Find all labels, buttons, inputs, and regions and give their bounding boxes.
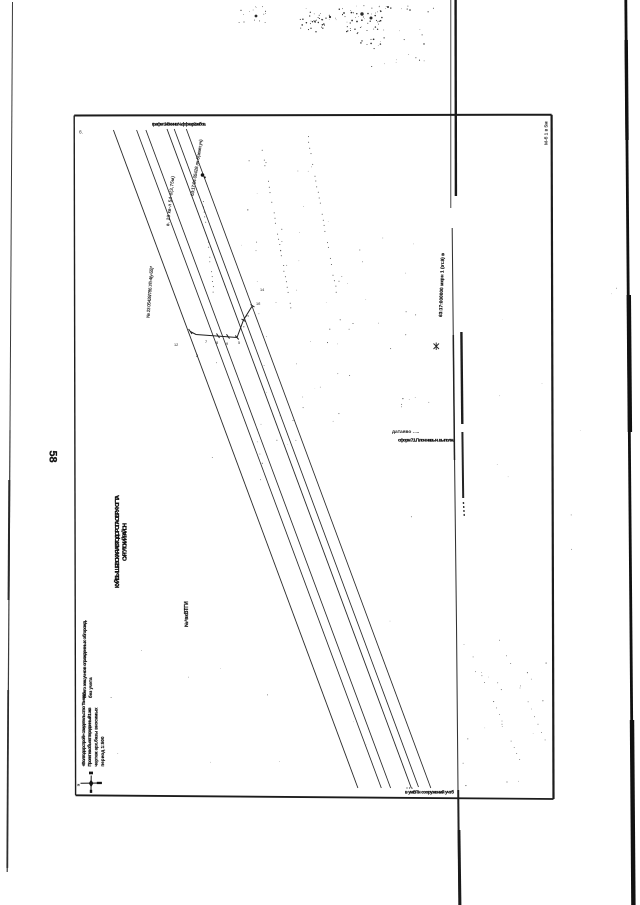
svg-text:№ 23 05428/786 УЛ-4(у-55)*: № 23 05428/786 УЛ-4(у-55)*	[146, 266, 155, 318]
svg-text:5: 5	[238, 341, 240, 345]
svg-text:63:17:000000 мкрн 1 (эт.9) в: 63:17:000000 мкрн 1 (эт.9) в	[438, 253, 445, 317]
svg-text:н: н	[247, 314, 249, 318]
svg-text:М-б 1 в 5м: М-б 1 в 5м	[544, 121, 550, 145]
svg-text:КУЙБЫШЕВСКАЯ АВТОДОРОГА ОБРУ-Ю: КУЙБЫШЕВСКАЯ АВТОДОРОГА ОБРУ-ЮГ ТА	[113, 494, 121, 588]
svg-text:14: 14	[260, 288, 264, 292]
svg-text:«Волгодорстрой» свидетельство: «Волгодорстрой» свидетельство Та-юсл.	[81, 692, 86, 767]
svg-text:Проект на объект переданный 1: Проект на объект переданный 1 экз	[87, 707, 92, 767]
svg-text:8: 8	[216, 341, 218, 345]
svg-text:сформ 7.1.П.пон навыч. выполн.: сформ 7.1.П.пон навыч. выполн.	[398, 437, 454, 443]
svg-text:7: 7	[205, 340, 207, 344]
svg-text:период 1:500: период 1:500	[100, 736, 105, 767]
svg-text:без учета: без учета	[88, 677, 93, 698]
svg-text:58: 58	[47, 450, 59, 462]
svg-text:в. 23 кв-л 54 о(3,75м): в. 23 кв-л 54 о(3,75м)	[165, 175, 175, 226]
svg-text:63:17:04 05428 лч-6(земн.уч): 63:17:04 05428 лч-6(земн.уч)	[190, 139, 204, 197]
svg-text:чертеж арх.базы вносимых: чертеж арх.базы вносимых	[94, 707, 99, 767]
svg-text:1б: 1б	[256, 302, 261, 306]
svg-text:№²вкВТГИ: №²вкВТГИ	[184, 601, 190, 627]
svg-text:в умВТи сооружений учтб: в умВТи сооружений учтб	[405, 790, 454, 795]
svg-text:гр.афал 148 к инв.№ффна р2.ваб: гр.афал 148 к инв.№ффна р2.вабов.	[152, 122, 206, 127]
svg-text:СУРГУТСКИЙ РАЙОН: СУРГУТСКИЙ РАЙОН	[121, 523, 129, 561]
svg-text:датаяво . ...: датаяво . ...	[392, 430, 419, 435]
svg-text:12: 12	[174, 343, 178, 347]
svg-text:Всего зем.уч-ков огражденных о: Всего зем.уч-ков огражденных обгорожд.	[82, 620, 87, 698]
svg-text:9: 9	[226, 342, 228, 346]
svg-text:н: н	[78, 783, 80, 787]
svg-text:2: 2	[196, 354, 198, 358]
svg-text:б.: б.	[79, 130, 83, 135]
